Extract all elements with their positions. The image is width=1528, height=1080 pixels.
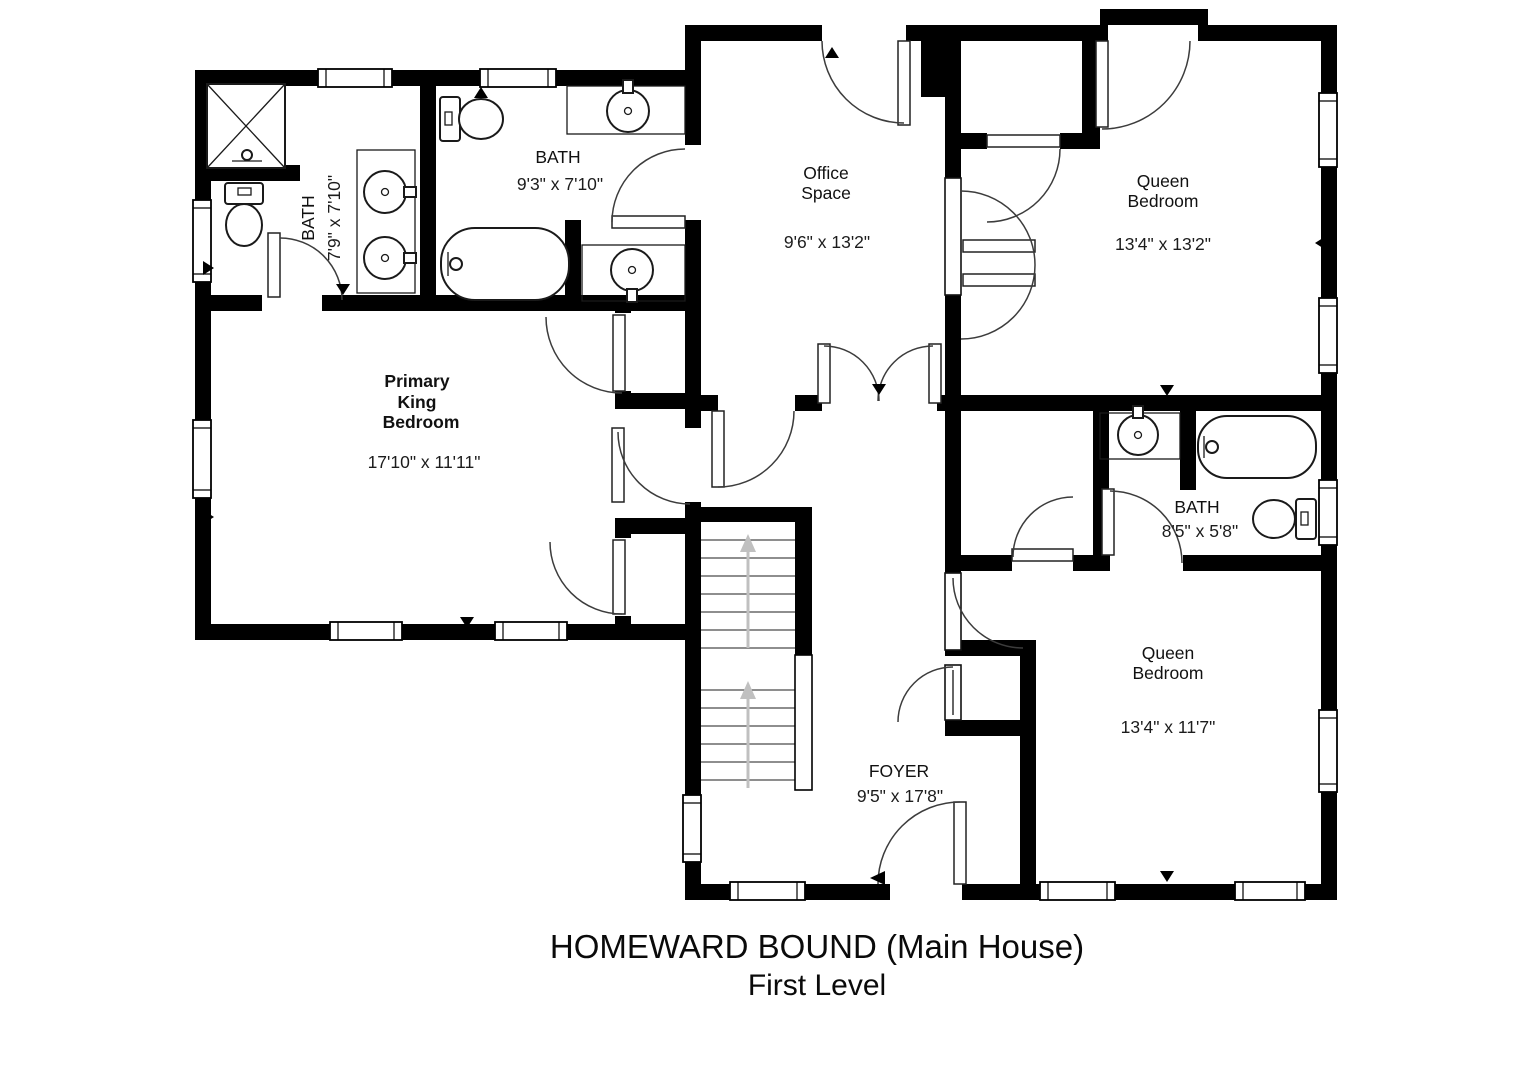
window: [495, 622, 567, 640]
sink-vanity: [567, 80, 685, 134]
double-sink-vanity: [357, 150, 416, 293]
entry-door: [870, 802, 966, 885]
room-label-foyer: FOYER 9'5" x 17'8": [857, 761, 943, 806]
window: [1319, 93, 1337, 167]
plan-title: HOMEWARD BOUND (Main House) First Level: [550, 928, 1084, 1002]
main-bath-name: BATH: [535, 147, 580, 167]
hall-bath-dims: 8'5" x 5'8": [1162, 521, 1239, 541]
queen-top-name-line2: Bedroom: [1127, 191, 1198, 211]
primary-name-line3: Bedroom: [383, 412, 460, 432]
floor-plan-page: BATH 7'9" x 7'10" BATH 9'3" x 7'10" Offi…: [0, 0, 1528, 1080]
plan-title-line1: HOMEWARD BOUND (Main House): [550, 928, 1084, 965]
window: [683, 795, 701, 862]
room-label-office: Office Space 9'6" x 13'2": [784, 163, 870, 252]
window: [730, 882, 805, 900]
office-name-line2: Space: [801, 183, 851, 203]
door-swing: [1012, 497, 1073, 561]
door-swing: [550, 540, 625, 614]
window: [1040, 882, 1115, 900]
door-swing: [1096, 41, 1190, 129]
room-label-main-bath: BATH 9'3" x 7'10": [517, 147, 603, 194]
bathtub: [1198, 416, 1316, 478]
queen-bottom-name-line1: Queen: [1142, 643, 1195, 663]
shower: [207, 84, 285, 168]
window: [480, 69, 556, 87]
queen-bottom-dims: 13'4" x 11'7": [1121, 717, 1216, 737]
cased-opening: [945, 178, 961, 295]
floor-plan: BATH 7'9" x 7'10" BATH 9'3" x 7'10" Offi…: [0, 0, 1528, 1080]
window: [1319, 710, 1337, 792]
room-label-queen-bottom: Queen Bedroom 13'4" x 11'7": [1121, 643, 1216, 737]
window: [1319, 298, 1337, 373]
office-name-line1: Office: [803, 163, 848, 183]
window: [318, 69, 392, 87]
queen-bottom-name-line2: Bedroom: [1132, 663, 1203, 683]
room-label-primary-bath: BATH 7'9" x 7'10": [298, 175, 344, 261]
toilet: [440, 97, 503, 141]
sink-vanity: [582, 245, 685, 302]
queen-top-name-line1: Queen: [1137, 171, 1190, 191]
door-swing: [612, 149, 685, 228]
room-label-primary-bedroom: Primary King Bedroom 17'10" x 11'11": [368, 371, 481, 472]
window: [193, 420, 211, 498]
window: [330, 622, 402, 640]
primary-name-line1: Primary: [384, 371, 449, 391]
window: [1235, 882, 1305, 900]
queen-top-dims: 13'4" x 13'2": [1115, 234, 1211, 254]
primary-bath-dims: 7'9" x 7'10": [324, 175, 344, 261]
foyer-dims: 9'5" x 17'8": [857, 786, 943, 806]
room-label-queen-top: Queen Bedroom 13'4" x 13'2": [1115, 171, 1211, 254]
sink-vanity: [1100, 406, 1180, 459]
door-swing: [953, 578, 1023, 648]
primary-bath-name: BATH: [298, 195, 318, 240]
room-label-hall-bath: BATH 8'5" x 5'8": [1162, 497, 1239, 541]
stair-railing: [795, 655, 812, 790]
office-dims: 9'6" x 13'2": [784, 232, 870, 252]
hall-bath-name: BATH: [1174, 497, 1219, 517]
closet-door-swings: [961, 191, 1035, 339]
stair-up-arrow: [740, 681, 756, 788]
walls: [195, 9, 1337, 900]
plan-title-line2: First Level: [748, 969, 886, 1002]
door-swing: [612, 428, 690, 504]
door-swing: [546, 315, 625, 393]
window: [1319, 480, 1337, 545]
toilet: [225, 183, 263, 246]
stair-up-arrow: [740, 534, 756, 648]
door-swing: [712, 411, 794, 487]
primary-name-line2: King: [398, 392, 437, 412]
foyer-name: FOYER: [869, 761, 929, 781]
bathtub: [441, 228, 569, 300]
main-bath-dims: 9'3" x 7'10": [517, 174, 603, 194]
primary-dims: 17'10" x 11'11": [368, 452, 481, 472]
toilet: [1253, 499, 1316, 539]
